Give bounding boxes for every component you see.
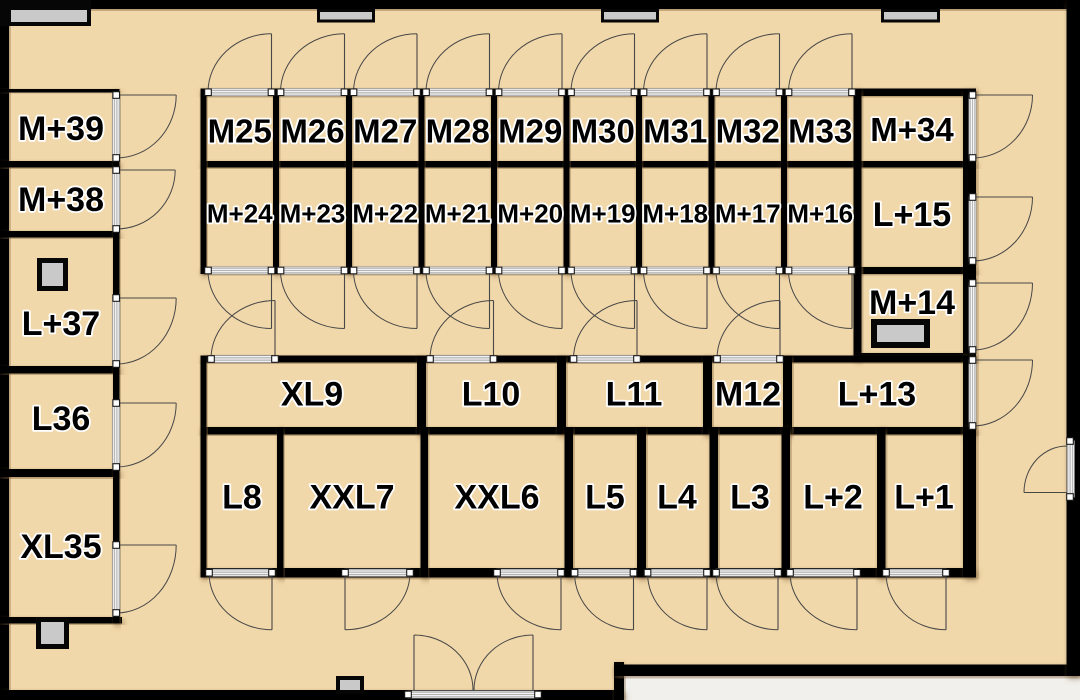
svg-text:L+2: L+2 — [803, 479, 863, 517]
svg-text:XL9: XL9 — [281, 376, 343, 414]
svg-text:M28: M28 — [426, 113, 490, 150]
svg-text:L+1: L+1 — [894, 479, 954, 517]
svg-text:L11: L11 — [606, 376, 663, 414]
svg-text:M+17: M+17 — [715, 199, 781, 229]
svg-text:M+24: M+24 — [207, 199, 273, 229]
svg-text:L8: L8 — [222, 479, 262, 517]
svg-text:L+37: L+37 — [22, 305, 100, 343]
svg-text:M32: M32 — [716, 113, 780, 150]
svg-text:M25: M25 — [208, 113, 272, 150]
svg-text:M+34: M+34 — [870, 111, 954, 148]
svg-text:XXL7: XXL7 — [309, 479, 394, 517]
svg-text:M26: M26 — [280, 113, 344, 150]
svg-text:M27: M27 — [353, 113, 417, 150]
svg-text:M12: M12 — [715, 376, 781, 414]
svg-text:L5: L5 — [585, 479, 625, 517]
svg-text:L3: L3 — [730, 479, 770, 517]
svg-text:M29: M29 — [498, 113, 562, 150]
svg-text:L36: L36 — [32, 400, 91, 438]
svg-text:M+23: M+23 — [280, 199, 346, 229]
svg-text:M+21: M+21 — [425, 199, 491, 229]
svg-text:M30: M30 — [571, 113, 635, 150]
svg-text:M+19: M+19 — [570, 199, 636, 229]
svg-text:M+38: M+38 — [18, 181, 104, 219]
svg-text:XL35: XL35 — [20, 528, 101, 566]
svg-text:M+14: M+14 — [869, 284, 955, 322]
svg-text:L+15: L+15 — [873, 196, 951, 234]
svg-text:M+39: M+39 — [18, 110, 104, 148]
svg-text:L+13: L+13 — [838, 376, 916, 414]
svg-text:XXL6: XXL6 — [454, 479, 539, 517]
svg-text:M+16: M+16 — [787, 199, 853, 229]
svg-text:L4: L4 — [657, 479, 697, 517]
svg-text:M33: M33 — [788, 113, 852, 150]
svg-text:M+20: M+20 — [497, 199, 563, 229]
svg-text:L10: L10 — [462, 376, 521, 414]
svg-text:M+18: M+18 — [642, 199, 708, 229]
svg-text:M+22: M+22 — [352, 199, 418, 229]
svg-text:M31: M31 — [643, 113, 707, 150]
